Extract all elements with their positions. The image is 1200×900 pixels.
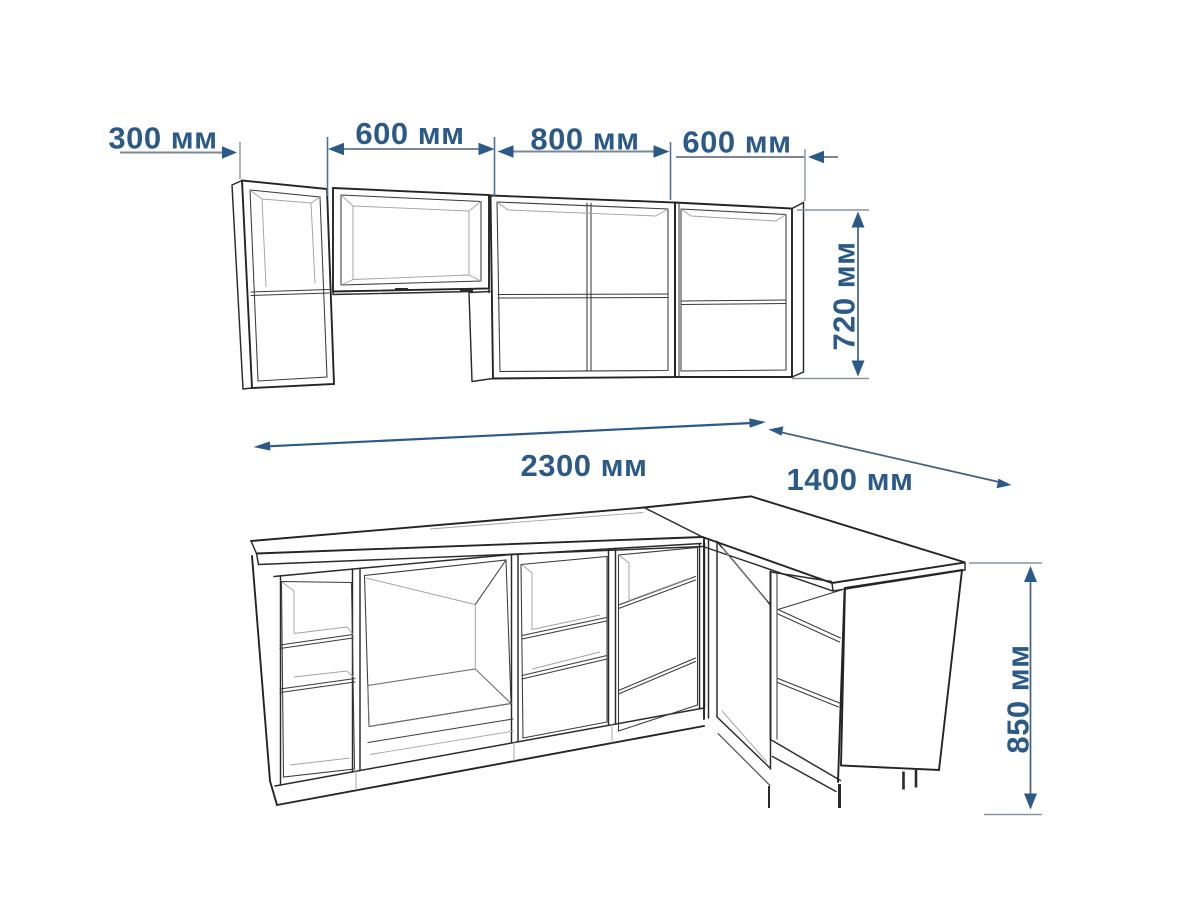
svg-text:300 мм: 300 мм <box>108 121 217 156</box>
svg-text:600 мм: 600 мм <box>355 116 464 151</box>
svg-text:2300 мм: 2300 мм <box>521 448 648 483</box>
svg-text:1400 мм: 1400 мм <box>787 462 914 497</box>
svg-text:720 мм: 720 мм <box>827 241 862 350</box>
svg-text:850 мм: 850 мм <box>1001 644 1036 753</box>
svg-text:600 мм: 600 мм <box>682 125 791 160</box>
